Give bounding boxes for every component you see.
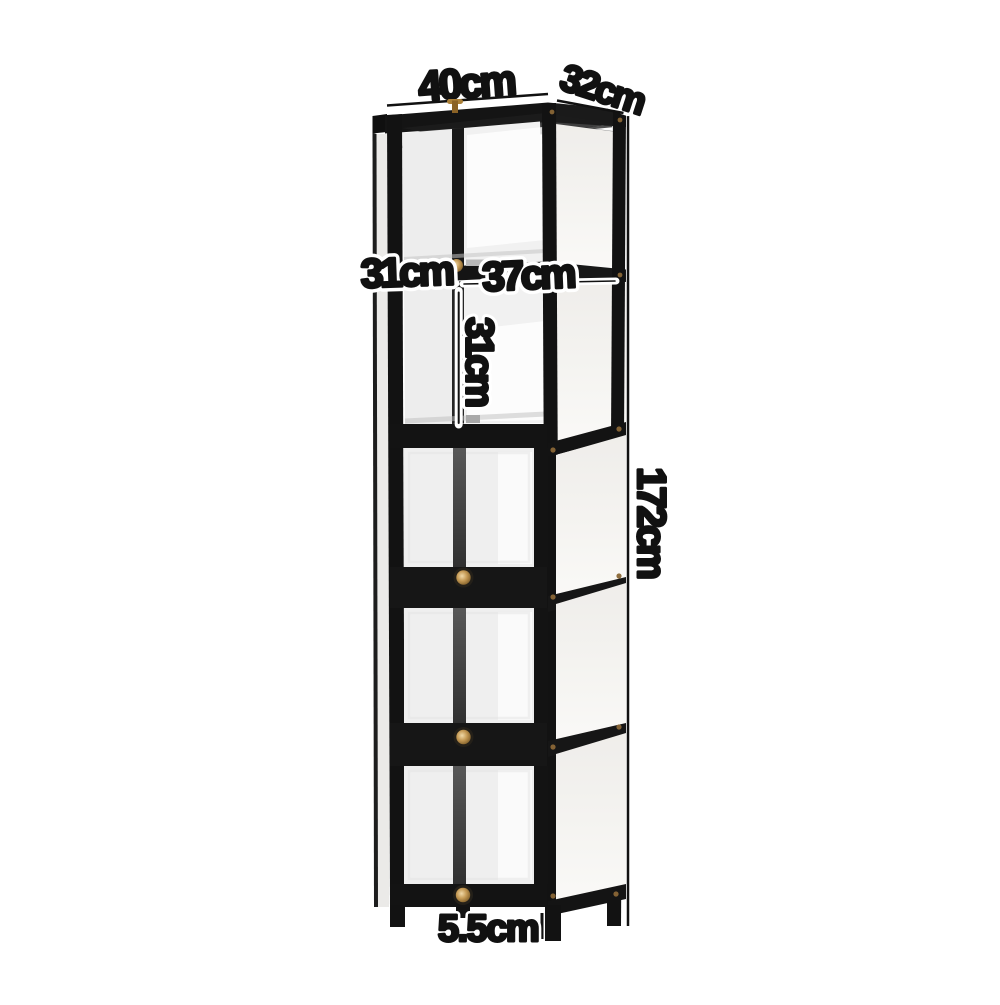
svg-text:172cm: 172cm: [629, 467, 673, 578]
svg-text:5.5cm: 5.5cm: [438, 908, 538, 950]
svg-text:37cm: 37cm: [481, 250, 575, 300]
svg-text:31cm: 31cm: [360, 247, 453, 296]
svg-text:31cm: 31cm: [458, 317, 501, 406]
